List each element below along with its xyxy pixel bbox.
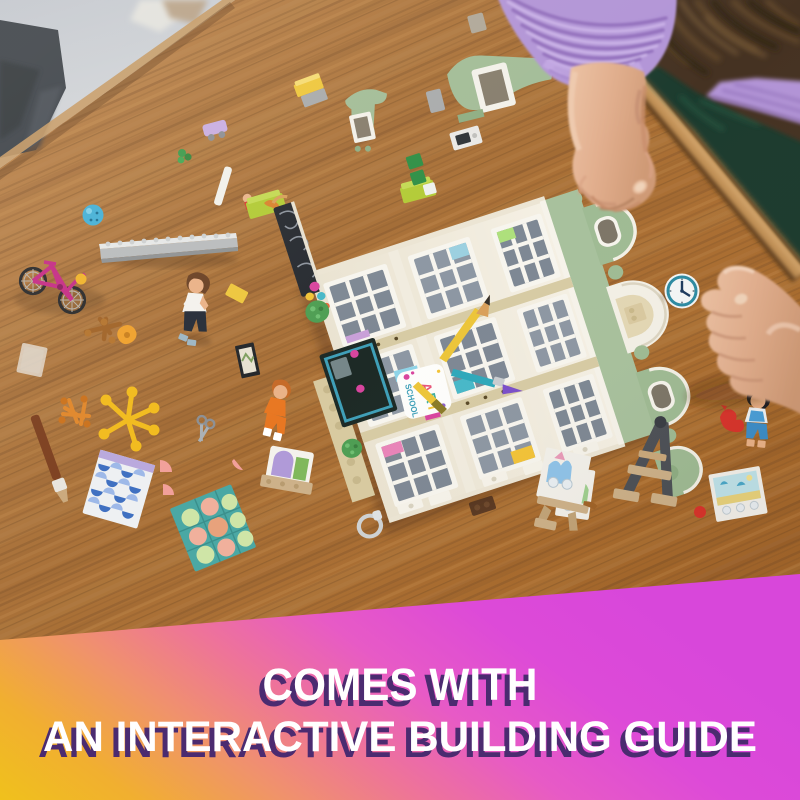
svg-text:COMES WITH: COMES WITH (263, 660, 538, 711)
svg-text:AN INTERACTIVE BUILDING GUIDE: AN INTERACTIVE BUILDING GUIDE (43, 713, 757, 761)
